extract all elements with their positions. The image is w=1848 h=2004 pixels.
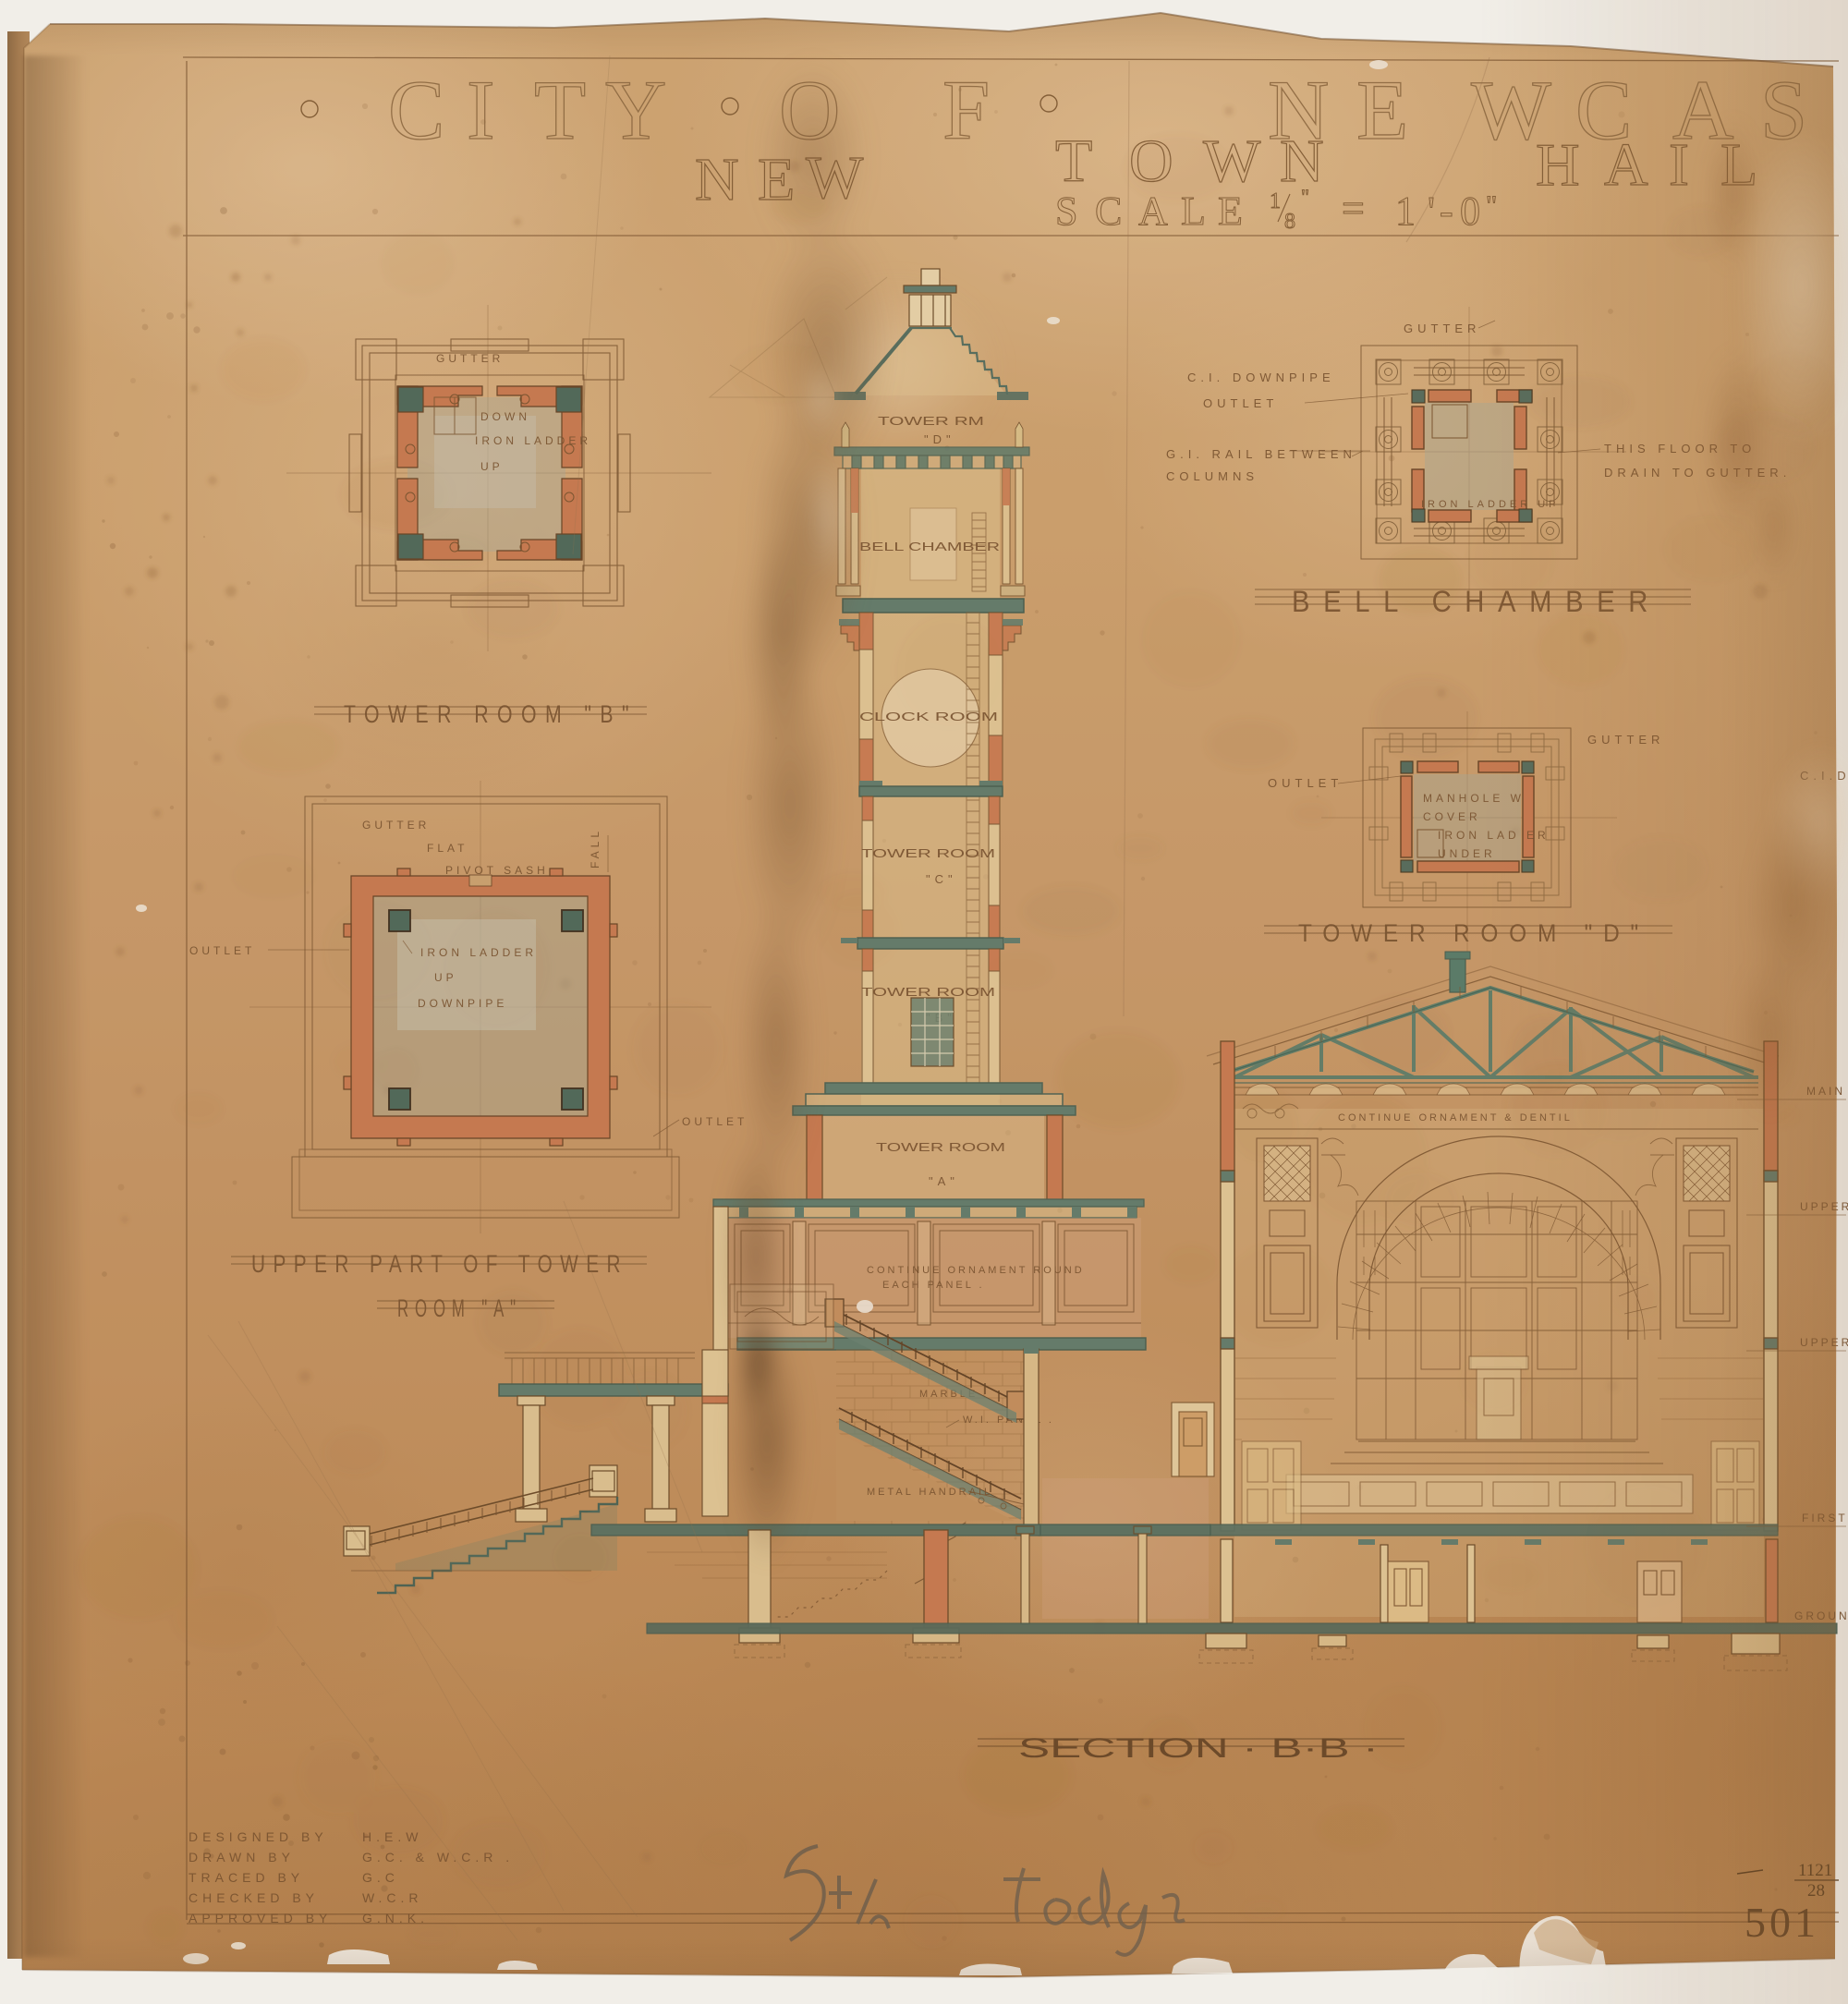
- svg-text:G.I. RAIL BETWEEN: G.I. RAIL BETWEEN: [1166, 447, 1356, 461]
- svg-text:UP: UP: [434, 971, 457, 984]
- svg-text:DESIGNED BY: DESIGNED BY: [188, 1829, 328, 1844]
- svg-text:C: C: [1095, 188, 1122, 234]
- svg-text:"A": "A": [929, 1174, 959, 1188]
- svg-text:MAIN: MAIN: [1806, 1085, 1845, 1098]
- svg-text:UP: UP: [480, 460, 504, 473]
- svg-text:OUTLET: OUTLET: [1268, 776, 1343, 790]
- svg-text:CONTINUE ORNAMENT ROUND: CONTINUE ORNAMENT ROUND: [867, 1265, 1085, 1276]
- svg-text:BELL CHAMBER: BELL CHAMBER: [859, 540, 1000, 553]
- svg-text:C.I.DOW: C.I.DOW: [1800, 769, 1848, 783]
- svg-text:GROUND: GROUND: [1794, 1609, 1848, 1622]
- svg-text:C: C: [388, 63, 444, 157]
- svg-text:IRON LADDER UP: IRON LADDER UP: [1421, 499, 1560, 510]
- svg-text:TOWER ROOM: TOWER ROOM: [861, 846, 995, 860]
- svg-text:TRACED BY: TRACED BY: [188, 1870, 304, 1885]
- svg-text:SECTION · B·B ·: SECTION · B·B ·: [1018, 1733, 1379, 1764]
- svg-text:UPPER PART OF TOWER: UPPER PART OF TOWER: [251, 1250, 628, 1278]
- svg-text:COLUMNS: COLUMNS: [1166, 469, 1258, 483]
- svg-text:CHECKED BY: CHECKED BY: [188, 1890, 319, 1905]
- svg-text:DRAIN TO GUTTER.: DRAIN TO GUTTER.: [1604, 466, 1791, 480]
- svg-text:H.E.W: H.E.W: [362, 1829, 422, 1844]
- svg-text:TOWER ROOM: TOWER ROOM: [876, 1140, 1005, 1154]
- svg-text:S: S: [1760, 63, 1807, 157]
- svg-text:ROOM "A": ROOM "A": [397, 1294, 522, 1322]
- svg-text:IRON LAD ER: IRON LAD ER: [1438, 829, 1550, 842]
- svg-text:IRON LADDER: IRON LADDER: [475, 434, 591, 447]
- svg-text:TOWER ROOM "B": TOWER ROOM "B": [344, 700, 638, 728]
- svg-text:OUTLET: OUTLET: [682, 1115, 748, 1128]
- svg-text:8: 8: [1284, 210, 1295, 234]
- svg-text:OUTLET: OUTLET: [1203, 396, 1278, 410]
- svg-text:Y: Y: [605, 63, 666, 157]
- svg-text:N: N: [695, 146, 739, 213]
- svg-text:W.C.R: W.C.R: [362, 1890, 422, 1905]
- svg-text:F: F: [942, 63, 990, 157]
- svg-text:G.N.K.: G.N.K.: [362, 1911, 429, 1925]
- svg-text:FIRST: FIRST: [1802, 1512, 1848, 1524]
- svg-text:E: E: [758, 146, 795, 213]
- svg-text:GUTTER: GUTTER: [1404, 322, 1480, 335]
- svg-text:TOWER ROOM: TOWER ROOM: [861, 985, 995, 999]
- svg-text:FLAT: FLAT: [427, 842, 468, 855]
- svg-text:"D": "D": [924, 432, 955, 446]
- svg-text:L: L: [1181, 188, 1206, 234]
- svg-text:L: L: [1720, 131, 1757, 199]
- svg-text:GUTTER: GUTTER: [436, 352, 504, 365]
- svg-text:PIVOT SASH: PIVOT SASH: [445, 864, 549, 877]
- svg-text:GUTTER: GUTTER: [1587, 733, 1664, 747]
- svg-text:THIS FLOOR TO: THIS FLOOR TO: [1604, 442, 1756, 455]
- svg-text:GUTTER: GUTTER: [362, 819, 430, 832]
- svg-text:S: S: [1055, 188, 1077, 234]
- svg-text:IRON LADDER: IRON LADDER: [420, 946, 537, 959]
- svg-text:A: A: [1138, 188, 1168, 234]
- svg-text:G.C. & W.C.R .: G.C. & W.C.R .: [362, 1850, 514, 1864]
- svg-text:E: E: [1356, 63, 1408, 157]
- svg-text:O: O: [1129, 128, 1173, 195]
- svg-text:T: T: [1055, 128, 1092, 195]
- svg-text:UPPER: UPPER: [1800, 1336, 1848, 1349]
- svg-text:FALL: FALL: [589, 828, 602, 868]
- svg-text:BELL CHAMBER: BELL CHAMBER: [1292, 585, 1661, 618]
- svg-text:DOWNPIPE: DOWNPIPE: [418, 997, 507, 1010]
- svg-text:OUTLET: OUTLET: [189, 944, 255, 957]
- svg-text:UPPER: UPPER: [1800, 1200, 1848, 1213]
- svg-text:EACH PANEL .: EACH PANEL .: [882, 1280, 985, 1291]
- svg-text:1121: 1121: [1798, 1861, 1832, 1880]
- svg-text:W: W: [806, 144, 864, 212]
- svg-text:I: I: [1669, 131, 1689, 199]
- svg-text:DOWN: DOWN: [480, 410, 530, 423]
- svg-text:UNDER: UNDER: [1438, 847, 1496, 860]
- svg-text:": ": [1301, 185, 1309, 208]
- svg-text:1: 1: [1270, 189, 1281, 213]
- svg-text:CONTINUE ORNAMENT & DENTIL: CONTINUE ORNAMENT & DENTIL: [1338, 1112, 1573, 1123]
- svg-text:0: 0: [1460, 188, 1480, 234]
- svg-text:O: O: [779, 63, 840, 157]
- svg-text:MANHOLE W: MANHOLE W: [1423, 792, 1525, 805]
- svg-text:APPROVED BY: APPROVED BY: [188, 1911, 332, 1925]
- svg-text:COVER: COVER: [1423, 810, 1481, 823]
- svg-text:-: -: [1440, 188, 1453, 234]
- svg-text:": ": [1486, 190, 1497, 221]
- svg-text:TOWER RM: TOWER RM: [878, 414, 984, 428]
- svg-text:I: I: [467, 63, 495, 157]
- svg-text:H: H: [1536, 131, 1580, 199]
- svg-text:=: =: [1342, 186, 1365, 231]
- svg-text:W: W: [1203, 128, 1261, 195]
- svg-text:"C": "C": [926, 872, 957, 886]
- svg-text:E: E: [1218, 188, 1243, 234]
- svg-text:G.C: G.C: [362, 1870, 399, 1885]
- svg-text:TOWER ROOM "D": TOWER ROOM "D": [1298, 919, 1649, 947]
- svg-text:28: 28: [1807, 1881, 1825, 1901]
- svg-text:1: 1: [1395, 188, 1416, 234]
- svg-text:C.I. DOWNPIPE: C.I. DOWNPIPE: [1187, 370, 1335, 384]
- svg-text:501: 501: [1745, 1899, 1819, 1946]
- svg-text:T: T: [534, 63, 586, 157]
- svg-text:A: A: [1604, 131, 1648, 199]
